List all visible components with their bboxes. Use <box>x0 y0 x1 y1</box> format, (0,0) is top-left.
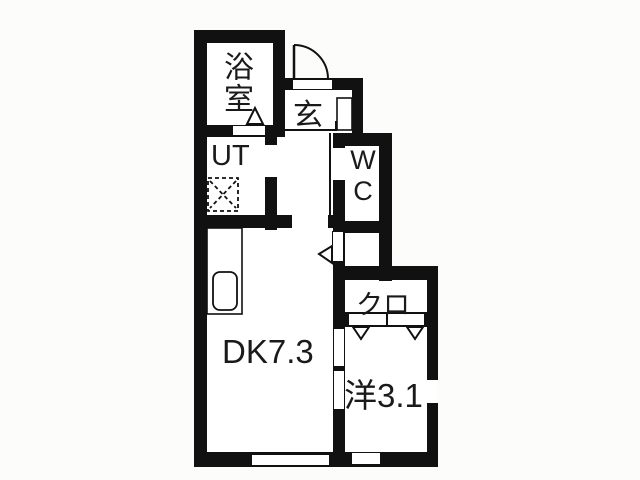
western-window-south <box>352 453 380 464</box>
alcove-door <box>332 231 344 262</box>
room-label-bathroom: 浴室 <box>219 51 252 115</box>
wall-closet-north <box>333 266 438 280</box>
room-label-dining-kitchen: DK7.3 <box>222 333 314 371</box>
dk-window-south <box>252 455 329 465</box>
toilet-label-line2: C <box>345 176 381 207</box>
room-label-western: 洋3.1 <box>344 369 423 417</box>
wall-east <box>427 266 438 467</box>
bathroom-door-opening <box>232 125 266 136</box>
toilet-label-line1: W <box>345 145 381 176</box>
toilet-door-opening <box>333 148 345 180</box>
entrance-door-arc-icon <box>294 45 328 79</box>
dk-western-slide-door-upper <box>333 328 345 367</box>
wall-bathroom-north <box>194 30 285 43</box>
room-label-toilet: W C <box>345 145 381 207</box>
utility-door-opening <box>265 145 277 177</box>
wall-west <box>194 30 207 467</box>
floor-plan: 浴室 UT 玄 W C クロ DK7.3 洋3.1 <box>0 0 640 480</box>
room-label-utility: UT <box>211 140 250 173</box>
western-window-east <box>427 380 438 403</box>
room-label-entrance: 玄 <box>293 90 323 134</box>
dk-entry-opening <box>292 215 328 228</box>
entrance-door-threshold <box>292 79 333 90</box>
room-label-closet: クロ <box>356 283 410 322</box>
